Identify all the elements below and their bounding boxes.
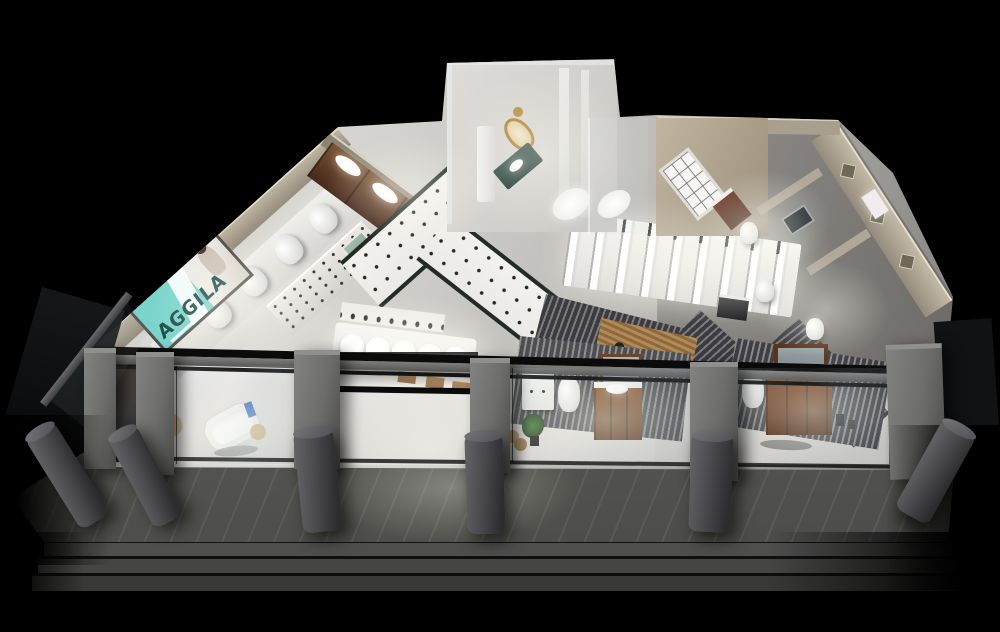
steps-right-fade (770, 532, 1000, 597)
glass-wall (447, 64, 452, 224)
french-window-room (656, 118, 768, 236)
glass-wall (447, 60, 615, 65)
display-toilet (269, 229, 308, 269)
dark-vanity (717, 294, 750, 321)
diamond-decor-panel (840, 163, 857, 180)
gold-mirror-crest (513, 107, 523, 117)
steps-left-fade (0, 532, 85, 597)
counter-sink (507, 157, 525, 174)
storefront-glass (176, 366, 300, 464)
bollard (464, 431, 506, 534)
display-toilet (303, 199, 342, 239)
display-toilet (756, 280, 774, 302)
diamond-decor-panel (899, 253, 916, 270)
freestanding-tub (592, 184, 635, 224)
white-column (477, 126, 495, 202)
display-toilet (806, 318, 824, 340)
storefront-glass (512, 368, 692, 462)
bollard-top (691, 429, 733, 442)
bollard-top (464, 429, 502, 442)
showroom-render: AGGILA (0, 0, 1000, 632)
bollard (688, 431, 733, 532)
storefront-glass (736, 368, 890, 464)
display-toilet (740, 222, 758, 244)
glass-shower-room (588, 118, 648, 234)
